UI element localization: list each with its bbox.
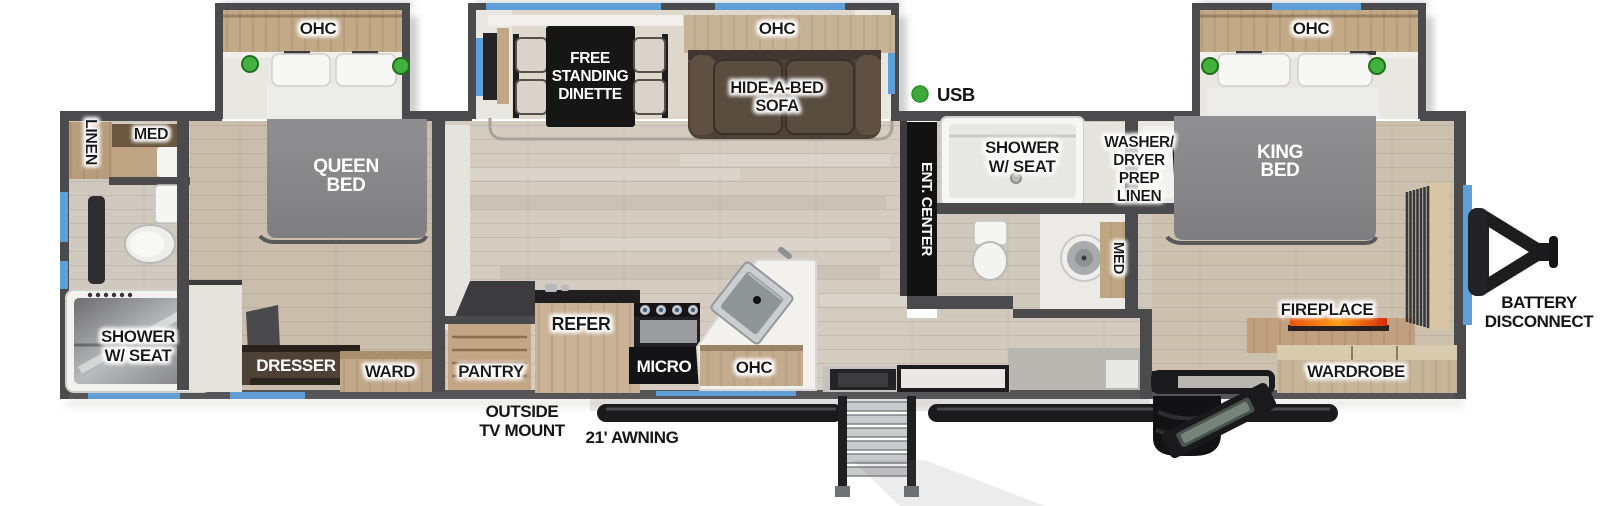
- svg-text:BATTERY: BATTERY: [1501, 293, 1578, 312]
- svg-text:W/ SEAT: W/ SEAT: [105, 346, 173, 365]
- svg-text:TV MOUNT: TV MOUNT: [479, 421, 566, 440]
- svg-text:WARD: WARD: [365, 362, 415, 381]
- svg-text:FREE: FREE: [570, 50, 610, 67]
- svg-text:21' AWNING: 21' AWNING: [586, 428, 679, 447]
- svg-text:DRYER: DRYER: [1113, 152, 1165, 169]
- svg-text:WARDROBE: WARDROBE: [1307, 362, 1405, 381]
- svg-text:DINETTE: DINETTE: [558, 86, 622, 103]
- svg-text:W/ SEAT: W/ SEAT: [989, 157, 1057, 176]
- svg-text:HIDE-A-BED: HIDE-A-BED: [730, 79, 824, 97]
- svg-text:OHC: OHC: [1293, 19, 1330, 38]
- svg-text:USB: USB: [937, 84, 975, 105]
- svg-text:SHOWER: SHOWER: [101, 327, 175, 346]
- svg-text:REFER: REFER: [551, 314, 610, 334]
- svg-text:BED: BED: [327, 175, 366, 196]
- svg-text:LINEN: LINEN: [1117, 188, 1162, 205]
- svg-text:MICRO: MICRO: [637, 357, 692, 376]
- svg-text:FIREPLACE: FIREPLACE: [1281, 300, 1374, 319]
- svg-text:QUEEN: QUEEN: [313, 156, 379, 177]
- svg-text:OHC: OHC: [300, 19, 337, 38]
- svg-text:OHC: OHC: [759, 19, 796, 38]
- svg-text:SOFA: SOFA: [755, 97, 799, 115]
- svg-text:BED: BED: [1261, 160, 1300, 181]
- svg-text:LINEN: LINEN: [82, 119, 99, 165]
- svg-text:ENT. CENTER: ENT. CENTER: [918, 162, 935, 257]
- svg-text:PANTRY: PANTRY: [458, 362, 525, 381]
- svg-text:OHC: OHC: [736, 358, 773, 377]
- svg-text:PREP: PREP: [1119, 170, 1160, 187]
- svg-text:DISCONNECT: DISCONNECT: [1485, 312, 1594, 331]
- svg-text:MED: MED: [134, 126, 168, 143]
- svg-text:OUTSIDE: OUTSIDE: [486, 402, 559, 421]
- svg-text:STANDING: STANDING: [552, 68, 629, 85]
- svg-text:DRESSER: DRESSER: [256, 356, 336, 375]
- svg-text:SHOWER: SHOWER: [985, 138, 1059, 157]
- svg-text:MED: MED: [1110, 242, 1127, 275]
- svg-text:WASHER/: WASHER/: [1104, 134, 1175, 151]
